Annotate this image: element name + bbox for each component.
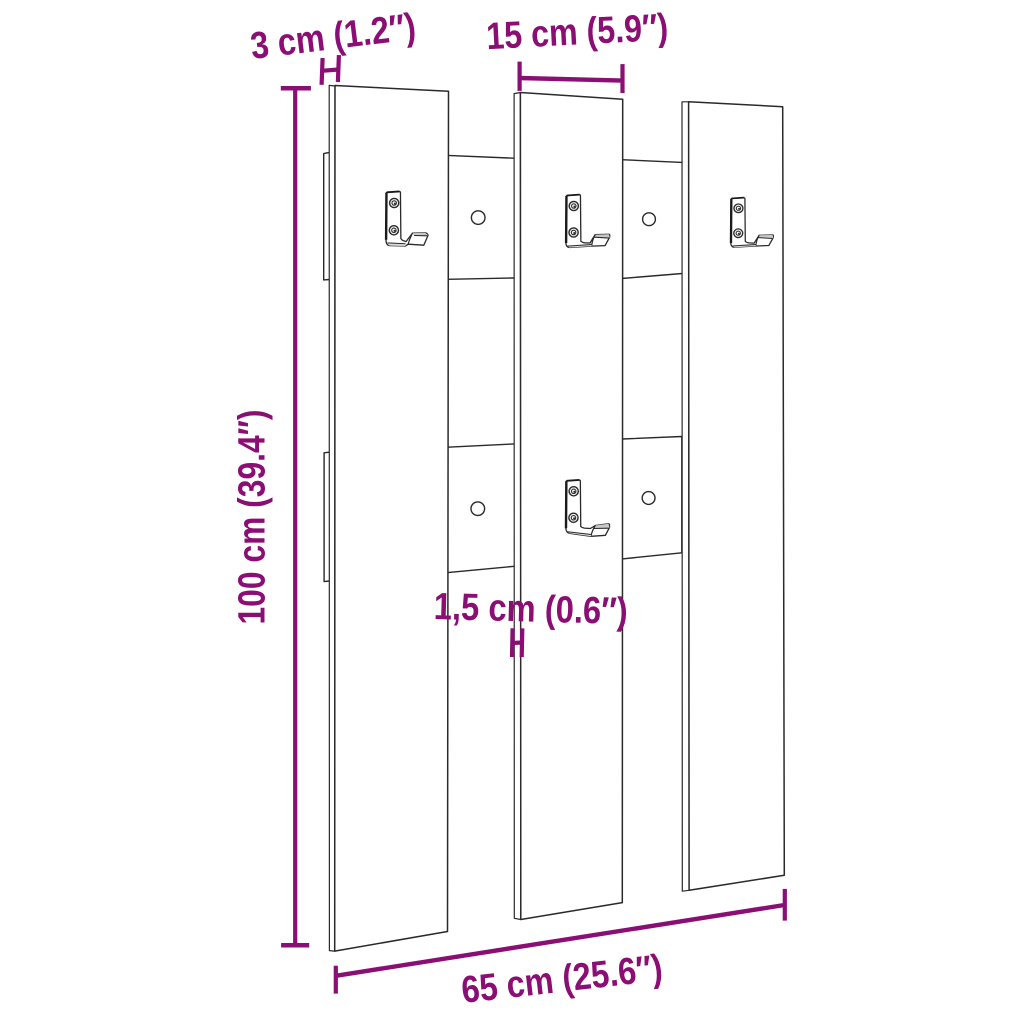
svg-text:100 cm (39.4″): 100 cm (39.4″): [232, 410, 274, 625]
svg-text:1,5 cm (0.6″): 1,5 cm (0.6″): [433, 586, 628, 633]
